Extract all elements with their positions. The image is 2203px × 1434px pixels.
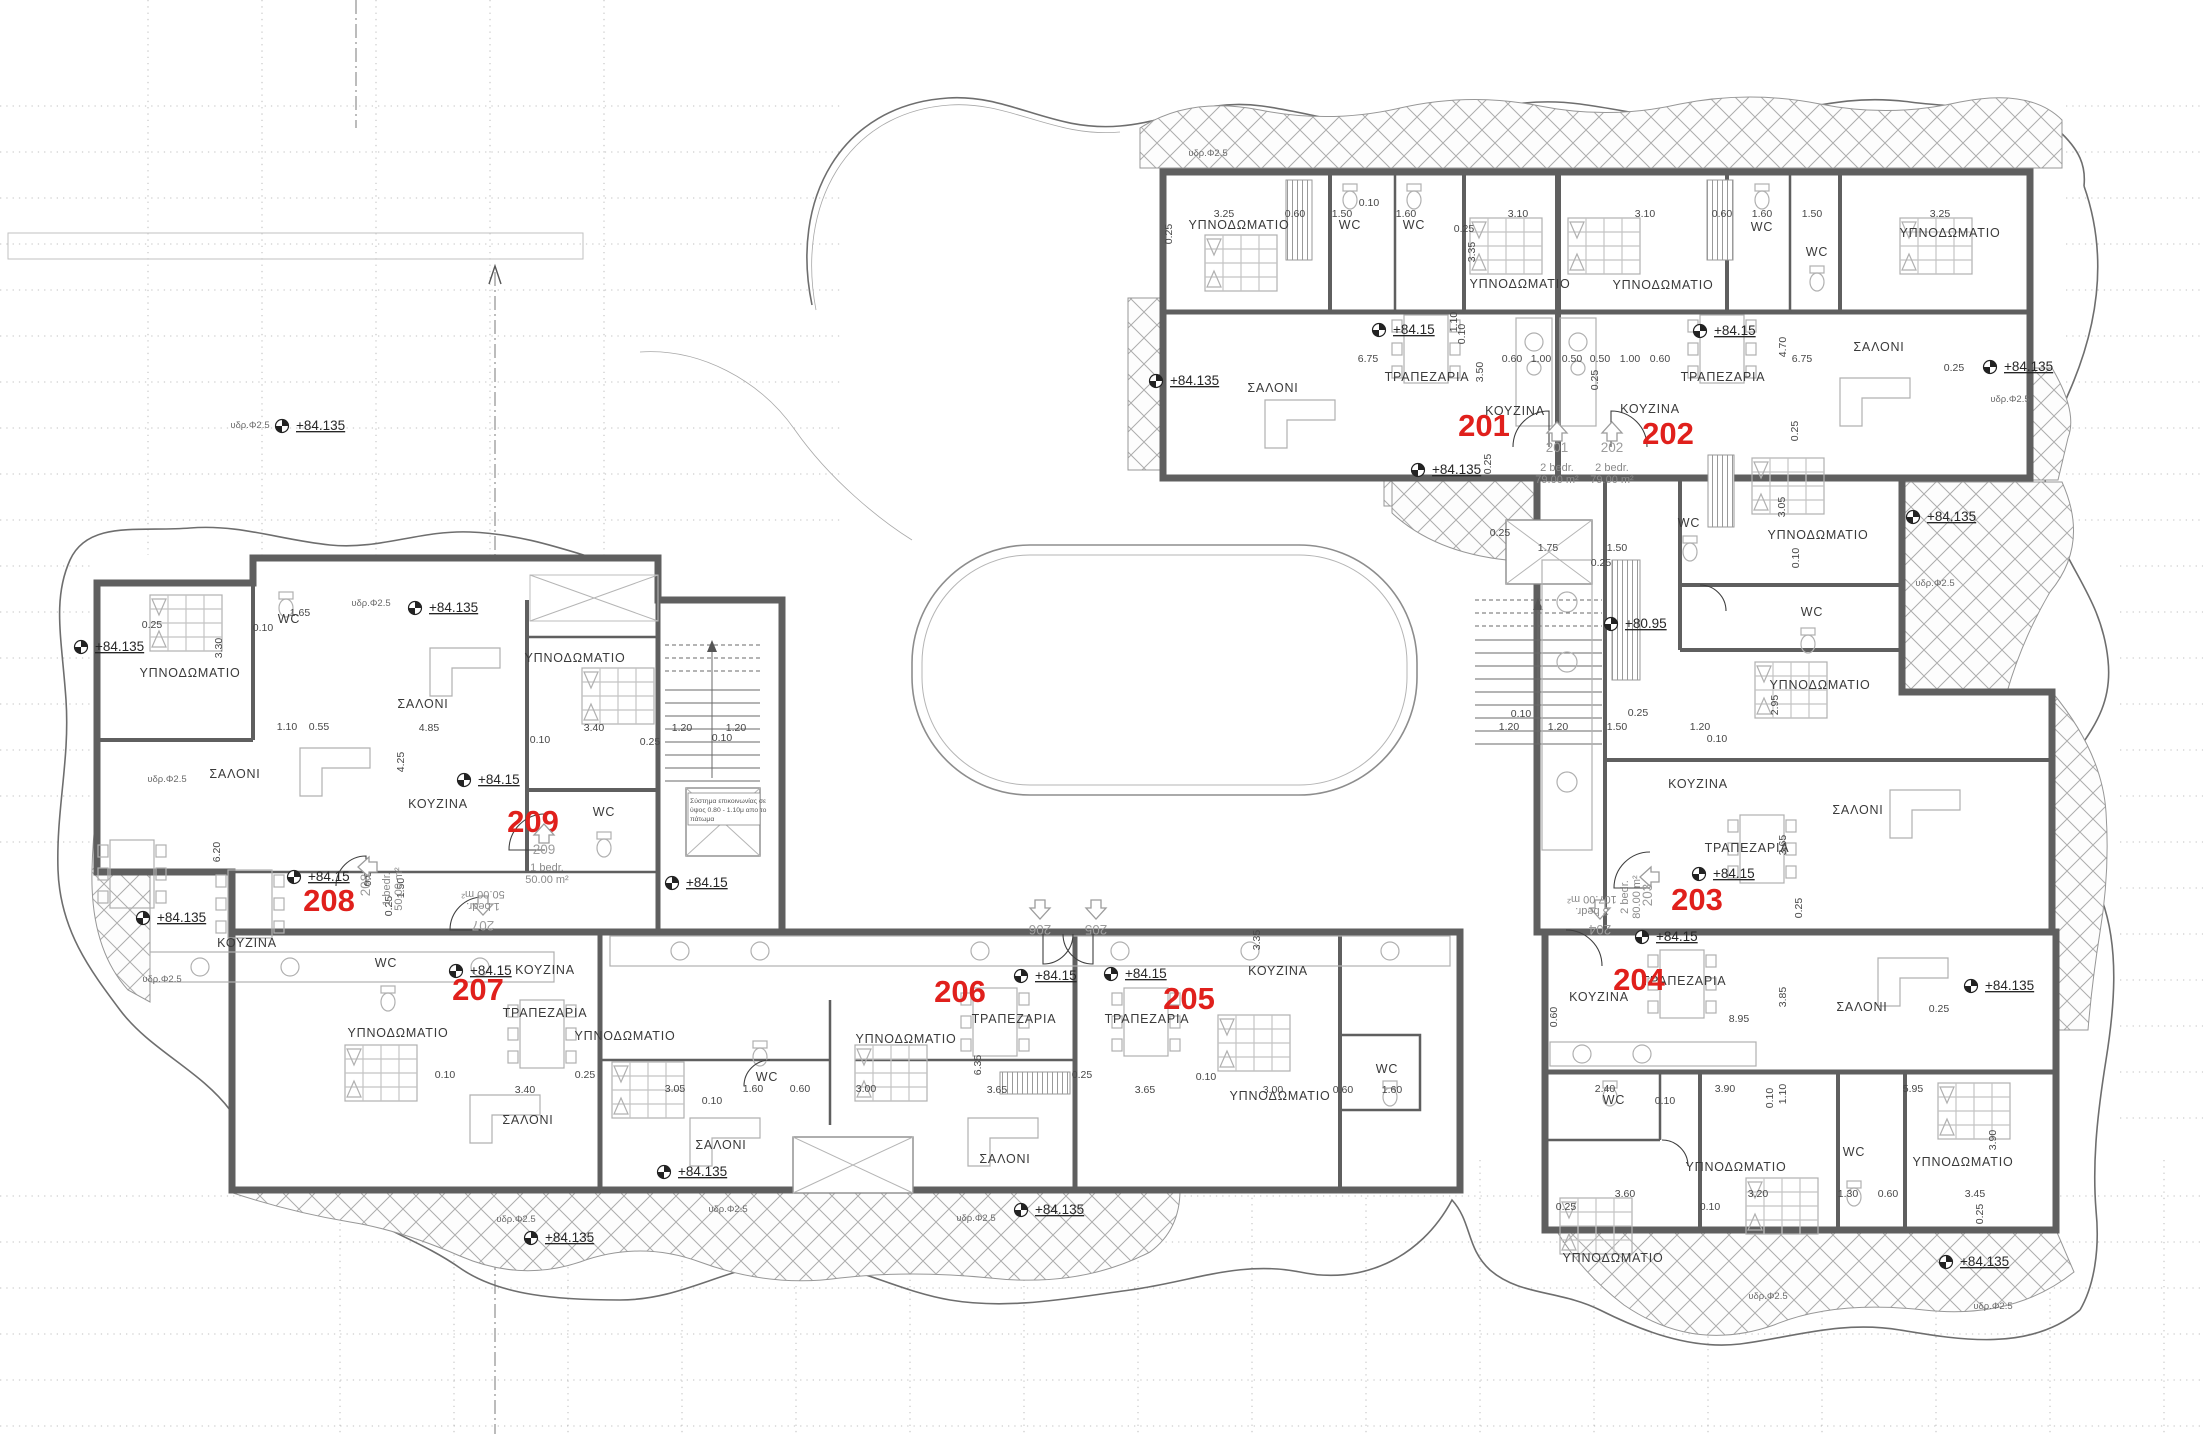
rainwater-pipe-note: υδρ.Φ2.5 <box>1188 148 1227 159</box>
unit-info-label: 2 bedr.80.00 m² <box>1619 875 1643 919</box>
dimension-label: 3.35 <box>1466 242 1478 263</box>
dimension-label: 0.10 <box>1707 733 1728 745</box>
unit-info-line: 79.00 m² <box>1590 474 1634 486</box>
unit-info-label: 1 bedr.50.00 m² <box>461 888 505 912</box>
room-label: WC <box>1376 1062 1398 1076</box>
room-label: ΚΟΥΖΙΝΑ <box>408 797 468 811</box>
rainwater-pipe-note: υδρ.Φ2.5 <box>230 420 269 431</box>
dimension-label: 3.35 <box>1251 930 1263 951</box>
room-label: ΥΠΝΟΔΩΜΑΤΙΟ <box>525 651 626 665</box>
dimension-label: 1.00 <box>1531 353 1552 365</box>
dimension-label: 6.20 <box>211 842 223 863</box>
benchmark-icon <box>1940 1256 1953 1269</box>
benchmark-icon <box>1984 361 1997 374</box>
benchmark-icon <box>1694 325 1707 338</box>
room-label: WC <box>756 1070 778 1084</box>
dimension-label: 4.85 <box>419 722 440 734</box>
room-label: ΚΟΥΖΙΝΑ <box>515 963 575 977</box>
dimension-label: 3.05 <box>665 1083 686 1095</box>
dimension-label: 0.25 <box>1591 557 1612 569</box>
room-label: ΥΠΝΟΔΩΜΑΤΙΟ <box>1768 528 1869 542</box>
dimension-label: 0.25 <box>1944 362 1965 374</box>
unit-number-label: 202 <box>1642 416 1694 451</box>
dimension-label: 3.00 <box>856 1083 877 1095</box>
dimension-label: 0.60 <box>1502 353 1523 365</box>
dimension-label: 0.25 <box>1490 527 1511 539</box>
benchmark-icon <box>1907 511 1920 524</box>
elevation-label: +84.15 <box>308 869 350 884</box>
room-label: ΣΑΛΟΝΙ <box>502 1113 553 1127</box>
benchmark-icon <box>450 965 463 978</box>
dimension-label: 1.65 <box>290 607 311 619</box>
door-unit-tag: 205 <box>1085 922 1108 937</box>
room-label: WC <box>1806 245 1828 259</box>
benchmark-icon <box>1605 618 1618 631</box>
door-unit-tag: 208 <box>358 874 373 897</box>
dimension-label: 3.30 <box>213 638 225 659</box>
elevation-label: +84.15 <box>1125 966 1167 981</box>
dimension-label: 0.60 <box>1712 208 1733 220</box>
unit-info-line: 79.00 m² <box>1535 474 1579 486</box>
elevation-label: +84.135 <box>1985 978 2034 993</box>
dimension-label: 0.10 <box>1196 1071 1217 1083</box>
room-label: ΥΠΝΟΔΩΜΑΤΙΟ <box>1613 278 1714 292</box>
dimension-label: 3.50 <box>1474 362 1486 383</box>
room-label: ΣΑΛΟΝΙ <box>209 767 260 781</box>
dimension-label: 0.60 <box>1878 1188 1899 1200</box>
benchmark-icon <box>288 871 301 884</box>
door-unit-tag: 206 <box>1029 922 1052 937</box>
rainwater-pipe-note: υδρ.Φ2.5 <box>142 974 181 985</box>
dimension-label: 3.05 <box>1776 497 1788 518</box>
benchmark-icon <box>137 912 150 925</box>
dimension-label: 1.20 <box>1499 721 1520 733</box>
note-box-line: πάτωμα <box>690 815 714 823</box>
unit-info-line: 50.00 m² <box>393 867 405 911</box>
room-label: ΥΠΝΟΔΩΜΑΤΙΟ <box>1686 1160 1787 1174</box>
benchmark-icon <box>75 641 88 654</box>
elevation-label: +84.135 <box>678 1164 727 1179</box>
unit-info-line: 3 bedr. <box>1575 905 1609 917</box>
dimension-label: 3.65 <box>1135 1084 1156 1096</box>
dimension-label: 0.10 <box>712 732 733 744</box>
dimension-label: 0.25 <box>1556 1201 1577 1213</box>
dimension-label: 0.10 <box>253 622 274 634</box>
dimension-label: 1.10 <box>277 721 298 733</box>
room-label: ΤΡΑΠΕΖΑΡΙΑ <box>503 1006 588 1020</box>
dimension-label: 6.75 <box>1358 353 1379 365</box>
unit-info-line: 1 bedr. <box>530 862 564 874</box>
dimension-label: 1.30 <box>1838 1188 1859 1200</box>
dimension-label: 0.25 <box>1589 370 1601 391</box>
dimension-label: 3.90 <box>1715 1083 1736 1095</box>
room-label: ΣΑΛΟΝΙ <box>979 1152 1030 1166</box>
benchmark-icon <box>658 1166 671 1179</box>
elevation-label: +84.15 <box>686 875 728 890</box>
dimension-label: 0.50 <box>1590 353 1611 365</box>
elevation-label: +84.15 <box>1714 323 1756 338</box>
dimension-label: 3.25 <box>1930 208 1951 220</box>
dimension-label: 6.75 <box>1792 353 1813 365</box>
elevation-label: +84.15 <box>478 772 520 787</box>
dimension-label: 3.60 <box>1615 1188 1636 1200</box>
elevation-label: +84.15 <box>1035 968 1077 983</box>
room-label: WC <box>1801 605 1823 619</box>
unit-info-line: 2 bedr. <box>1595 462 1629 474</box>
dimension-label: 0.60 <box>1650 353 1671 365</box>
benchmark-icon <box>1636 931 1649 944</box>
dimension-label: 0.25 <box>1163 224 1175 245</box>
dimension-label: 1.60 <box>1396 208 1417 220</box>
elevation-label: +84.135 <box>1035 1202 1084 1217</box>
elevation-label: +84.135 <box>2004 359 2053 374</box>
dimension-label: 0.25 <box>1454 223 1475 235</box>
dimension-label: 0.10 <box>1655 1095 1676 1107</box>
rainwater-pipe-note: υδρ.Φ2.5 <box>1748 1291 1787 1302</box>
elevation-label: +84.135 <box>157 910 206 925</box>
benchmark-icon <box>525 1232 538 1245</box>
room-label: ΥΠΝΟΔΩΜΑΤΙΟ <box>856 1032 957 1046</box>
elevation-label: +84.135 <box>1927 509 1976 524</box>
door-unit-tag: 204 <box>1588 922 1611 937</box>
door-unit-tag: 201 <box>1546 440 1569 455</box>
dimension-label: 0.25 <box>640 736 661 748</box>
room-label: ΥΠΝΟΔΩΜΑΤΙΟ <box>1900 226 2001 240</box>
dimension-label: 2.40 <box>1595 1083 1616 1095</box>
room-label: WC <box>1751 220 1773 234</box>
entry-door-arrow-icon <box>1030 900 1050 919</box>
room-label: ΥΠΝΟΔΩΜΑΤΙΟ <box>1563 1251 1664 1265</box>
floor-plan-svg: ΥΠΝΟΔΩΜΑΤΙΟΥΠΝΟΔΩΜΑΤΙΟΥΠΝΟΔΩΜΑΤΙΟΥΠΝΟΔΩΜ… <box>0 0 2203 1434</box>
dimension-label: 1.60 <box>1382 1084 1403 1096</box>
room-label: WC <box>1403 218 1425 232</box>
room-label: WC <box>1843 1145 1865 1159</box>
elevation-label: +84.135 <box>1960 1254 2009 1269</box>
unit-info-line: 1 bedr. <box>381 872 393 906</box>
dimension-label: 0.60 <box>1333 1084 1354 1096</box>
dimension-label: 0.60 <box>1548 1007 1560 1028</box>
dimension-label: 1.60 <box>743 1083 764 1095</box>
unit-number-label: 206 <box>934 974 986 1009</box>
room-label: ΥΠΝΟΔΩΜΑΤΙΟ <box>575 1029 676 1043</box>
dimension-label: 3.25 <box>1214 208 1235 220</box>
unit-info-line: 1 bedr. <box>466 900 500 912</box>
unit-number-label: 205 <box>1163 981 1215 1016</box>
dimension-label: 0.10 <box>1359 197 1380 209</box>
rainwater-pipe-note: υδρ.Φ2.5 <box>1915 578 1954 589</box>
note-box: Σύστημα επικοινωνίας σεύψος 0.80 - 1.10μ… <box>688 793 767 825</box>
dimension-label: 0.10 <box>1700 1201 1721 1213</box>
dimension-label: 3.40 <box>515 1084 536 1096</box>
pool <box>912 545 1417 795</box>
unit-number-label: 204 <box>1613 962 1665 997</box>
dimension-label: 0.10 <box>435 1069 456 1081</box>
benchmark-icon <box>276 420 289 433</box>
room-label: ΥΠΝΟΔΩΜΑΤΙΟ <box>1913 1155 2014 1169</box>
room-label: ΥΠΝΟΔΩΜΑΤΙΟ <box>348 1026 449 1040</box>
dimension-label: 0.55 <box>309 721 330 733</box>
room-label: ΤΡΑΠΕΖΑΡΙΑ <box>1385 370 1470 384</box>
room-label: ΣΑΛΟΝΙ <box>397 697 448 711</box>
dimension-label: 8.95 <box>1729 1013 1750 1025</box>
elevation-label: +84.15 <box>1713 866 1755 881</box>
dimension-label: 3.00 <box>1263 1084 1284 1096</box>
room-label: ΣΑΛΟΝΙ <box>1853 340 1904 354</box>
dimension-label: 0.25 <box>142 619 163 631</box>
dimension-label: 0.25 <box>1789 421 1801 442</box>
benchmark-icon <box>1150 375 1163 388</box>
benchmark-icon <box>1693 868 1706 881</box>
room-label: ΥΠΝΟΔΩΜΑΤΙΟ <box>140 666 241 680</box>
unit-info-line: 107.00 m² <box>1567 893 1617 905</box>
dimension-label: 1.75 <box>1538 542 1559 554</box>
rainwater-pipe-note: υδρ.Φ2.5 <box>496 1214 535 1225</box>
dimension-label: 0.10 <box>1511 708 1532 720</box>
dimension-label: 3.10 <box>1508 208 1529 220</box>
note-box-line: Σύστημα επικοινωνίας σε <box>690 797 766 805</box>
dimension-label: 0.25 <box>575 1069 596 1081</box>
dimension-label: 1.20 <box>672 722 693 734</box>
dimension-label: 6.35 <box>972 1055 984 1076</box>
dimension-label: 0.25 <box>1793 898 1805 919</box>
dimension-label: 0.10 <box>1790 548 1802 569</box>
unit-info-label: 1 bedr.50.00 m² <box>525 862 569 886</box>
room-label: ΚΟΥΖΙΝΑ <box>1620 402 1680 416</box>
door-unit-tag: 209 <box>533 842 556 857</box>
dimension-label: 1.20 <box>1548 721 1569 733</box>
dimension-label: 2.95 <box>1769 695 1781 716</box>
dimension-label: 3.45 <box>1965 1188 1986 1200</box>
rainwater-pipe-note: υδρ.Φ2.5 <box>956 1213 995 1224</box>
unit-info-label: 2 bedr.79.00 m² <box>1535 462 1579 486</box>
door-unit-tag: 207 <box>472 918 495 933</box>
dimension-label: 0.10 <box>702 1095 723 1107</box>
dimension-label: 3.10 <box>1635 208 1656 220</box>
dimension-label: 0.25 <box>1929 1003 1950 1015</box>
unit-info-line: 2 bedr. <box>1619 880 1631 914</box>
elevation-label: +84.135 <box>95 639 144 654</box>
dimension-label: 1.50 <box>1802 208 1823 220</box>
unit-info-line: 50.00 m² <box>525 874 569 886</box>
benchmark-icon <box>1015 1204 1028 1217</box>
elevation-label: +84.15 <box>1393 322 1435 337</box>
unit-info-line: 50.00 m² <box>461 888 505 900</box>
elevation-label: +84.135 <box>296 418 345 433</box>
rainwater-pipe-note: υδρ.Φ2.5 <box>351 598 390 609</box>
dimension-label: 5.95 <box>1903 1083 1924 1095</box>
dimension-label: 0.25 <box>1628 707 1649 719</box>
unit-number-label: 201 <box>1458 408 1510 443</box>
dimension-label: 0.25 <box>1072 1069 1093 1081</box>
dimension-label: 1.50 <box>1332 208 1353 220</box>
elevation-label: +80.95 <box>1625 616 1667 631</box>
dimension-label: 3.20 <box>1748 1188 1769 1200</box>
elevation-label: +84.135 <box>1432 462 1481 477</box>
rainwater-pipe-note: υδρ.Φ2.5 <box>147 774 186 785</box>
room-label: ΥΠΝΟΔΩΜΑΤΙΟ <box>1770 678 1871 692</box>
dimension-label: 0.10 <box>1456 324 1468 345</box>
room-label: WC <box>1339 218 1361 232</box>
dimension-label: 1.50 <box>1607 721 1628 733</box>
room-label: ΚΟΥΖΙΝΑ <box>1668 777 1728 791</box>
room-label: ΥΠΝΟΔΩΜΑΤΙΟ <box>1189 218 1290 232</box>
room-label: ΚΟΥΖΙΝΑ <box>217 936 277 950</box>
room-label: ΣΑΛΟΝΙ <box>1832 803 1883 817</box>
room-label: WC <box>1678 516 1700 530</box>
unit-number-label: 203 <box>1671 882 1723 917</box>
elevation-label: +84.135 <box>545 1230 594 1245</box>
dimension-label: 1.60 <box>1752 208 1773 220</box>
dimension-label: 0.50 <box>1562 353 1583 365</box>
room-label: ΚΟΥΖΙΝΑ <box>1248 964 1308 978</box>
room-label: WC <box>1603 1093 1625 1107</box>
elevation-label: +84.15 <box>1656 929 1698 944</box>
room-label: ΥΠΝΟΔΩΜΑΤΙΟ <box>1470 277 1571 291</box>
dimension-label: 0.10 <box>530 734 551 746</box>
dimension-label: 3.65 <box>1777 835 1789 856</box>
floor-plan-page: ΥΠΝΟΔΩΜΑΤΙΟΥΠΝΟΔΩΜΑΤΙΟΥΠΝΟΔΩΜΑΤΙΟΥΠΝΟΔΩΜ… <box>0 0 2203 1434</box>
benchmark-icon <box>666 877 679 890</box>
benchmark-icon <box>1015 970 1028 983</box>
benchmark-icon <box>1373 324 1386 337</box>
dimension-label: 3.85 <box>1777 987 1789 1008</box>
benchmark-icon <box>1412 464 1425 477</box>
room-label: ΤΡΑΠΕΖΑΡΙΑ <box>1681 370 1766 384</box>
unit-info-line: 2 bedr. <box>1540 462 1574 474</box>
dimension-label: 0.10 <box>1764 1088 1776 1109</box>
benchmark-icon <box>409 602 422 615</box>
dimension-label: 3.65 <box>987 1084 1008 1096</box>
dimension-label: 3.90 <box>1987 1130 1999 1151</box>
dimension-label: 4.25 <box>395 752 407 773</box>
dimension-label: 1.20 <box>1690 721 1711 733</box>
benchmark-icon <box>458 774 471 787</box>
elevation-label: +84.15 <box>470 963 512 978</box>
dimension-label: 0.60 <box>790 1083 811 1095</box>
room-label: ΣΑΛΟΝΙ <box>1247 381 1298 395</box>
rainwater-pipe-note: υδρ.Φ2.5 <box>1973 1301 2012 1312</box>
unit-info-label: 2 bedr.79.00 m² <box>1590 462 1634 486</box>
rainwater-pipe-note: υδρ.Φ2.5 <box>708 1204 747 1215</box>
dimension-label: 4.70 <box>1777 337 1789 358</box>
room-label: ΣΑΛΟΝΙ <box>1836 1000 1887 1014</box>
dimension-label: 1.00 <box>1620 353 1641 365</box>
room-label: ΣΑΛΟΝΙ <box>695 1138 746 1152</box>
rainwater-pipe-note: υδρ.Φ2.5 <box>1990 394 2029 405</box>
room-label: WC <box>593 805 615 819</box>
unit-number-label: 208 <box>303 883 355 918</box>
dimension-label: 1.50 <box>1607 542 1628 554</box>
elevation-label: +84.135 <box>1170 373 1219 388</box>
dimension-label: 1.10 <box>1777 1084 1789 1105</box>
entry-door-arrow-icon <box>1086 900 1106 919</box>
benchmark-icon <box>1105 968 1118 981</box>
unit-info-line: 80.00 m² <box>1631 875 1643 919</box>
dimension-label: 3.40 <box>584 722 605 734</box>
dimension-label: 0.60 <box>1285 208 1306 220</box>
room-label: ΤΡΑΠΕΖΑΡΙΑ <box>972 1012 1057 1026</box>
elevation-label: +84.135 <box>429 600 478 615</box>
dimension-label: 0.25 <box>1482 454 1494 475</box>
dimension-label: 0.25 <box>1974 1204 1986 1225</box>
door-unit-tag: 202 <box>1601 440 1624 455</box>
benchmark-icon <box>1965 980 1978 993</box>
unit-info-label: 1 bedr.50.00 m² <box>381 867 405 911</box>
note-box-line: ύψος 0.80 - 1.10μ απο το <box>690 806 767 814</box>
room-label: WC <box>375 956 397 970</box>
